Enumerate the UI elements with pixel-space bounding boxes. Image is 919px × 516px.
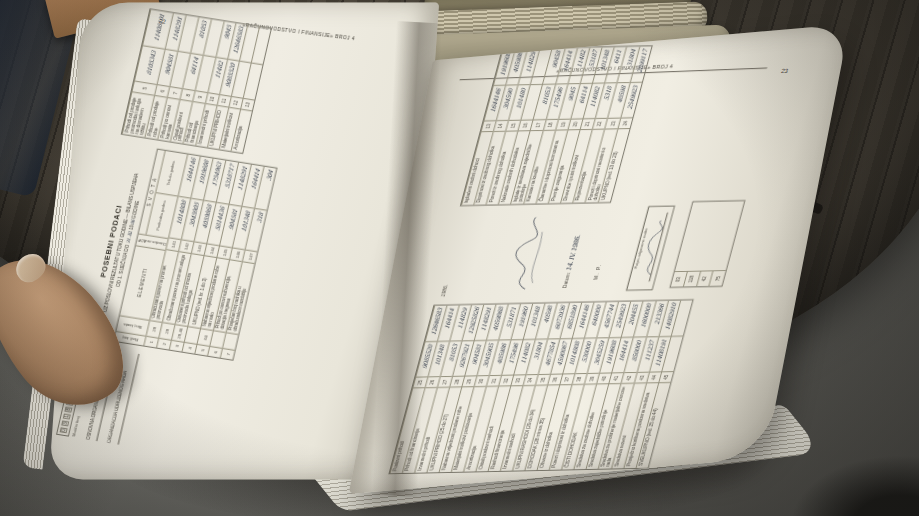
form-code-blank-area	[675, 201, 744, 271]
handwritten-cur-amount: 6411	[613, 49, 623, 63]
form-code-cell: 75	[710, 271, 726, 286]
handwritten-cur-amount: 9045	[223, 24, 233, 40]
code-grid-cell: 8	[64, 407, 72, 413]
handwritten-prev-amount: 40598	[615, 86, 626, 104]
row-number: 45	[659, 371, 673, 382]
handwritten-prev-amount: 904581	[227, 208, 238, 230]
form-code-cells: 031184275	[671, 270, 726, 287]
handwritten-prev-amount: 318	[254, 212, 263, 224]
period-handwritten-date: 31. III.	[125, 231, 133, 244]
right-form-bottom-table-zone: Poslovni prihodi 25 9085520 12646583 Pri…	[388, 298, 739, 474]
handwritten-cur-amount: 90458	[550, 51, 561, 69]
right-form-signature-zone: 1986. Datum: 14. IV. 1986. M. P. Potpis …	[436, 208, 764, 297]
form-year-note: 1986.	[440, 214, 468, 297]
handwritten-prev-amount: 101348	[239, 210, 250, 232]
handwritten-prev-amount: 5318	[603, 86, 613, 100]
continuation-table: Prihodi od prodaje proizvoda i usluga na…	[121, 8, 272, 154]
cell-aop: 147	[243, 249, 257, 263]
handwritten-cur-amount: 11408191	[152, 13, 165, 42]
code-grid-cell: 0	[60, 427, 68, 433]
handwritten-prev-amount: 8105343	[144, 50, 156, 76]
code-grid-cell: 3	[61, 420, 69, 426]
signature-scribble	[499, 214, 555, 294]
cell-redni-broj: 4	[183, 342, 197, 354]
row-number: 13	[241, 98, 254, 111]
photo-open-accounting-book: 22 «RAČUNOVODSTVO I FINANSIJE» BROJ 4 03…	[0, 0, 919, 516]
handwritten-cur-amount: 304	[264, 169, 273, 181]
handwritten-cur-amount: 31804	[624, 49, 635, 67]
handwritten-prev-amount: 904581	[163, 53, 174, 75]
handwritten-prev-amount: 9045	[566, 87, 576, 101]
cell-redni-broj: 2	[157, 338, 171, 350]
row-number: 24	[619, 117, 633, 128]
left-form-main-column: POSEBNI PODACI UZ POSLOVNI REZULTAT U TO…	[75, 142, 405, 381]
handwritten-cur-amount: 81053	[197, 20, 207, 39]
signature-box: Potpis odgovorne osobe	[626, 205, 675, 290]
date-label: Datum:	[561, 272, 571, 288]
handwritten-prev-amount: 64114	[189, 57, 199, 76]
cell-redni-broj: 5	[195, 344, 209, 356]
cell-redni-broj: 6	[208, 346, 222, 358]
cell-redni-broj: 1	[144, 336, 158, 348]
form-code-box: 031184275	[669, 200, 745, 288]
handwritten-date: 14. IV. 1986.	[564, 235, 582, 271]
cell-redni-broj: 3	[170, 340, 184, 352]
results-table: Poslovni prihodi 25 9085520 12646583 Pri…	[388, 299, 693, 474]
stamp-placeholder-label: M. P.	[592, 264, 602, 280]
date-line: Datum: 14. IV. 1986.	[560, 235, 582, 288]
code-grid-cell: 1	[63, 413, 71, 419]
handwritten-prev-amount: 81053	[540, 87, 551, 105]
right-form-upper-table-zone: Isplaćeni osobni dohoci 13 1644146 19196…	[460, 42, 808, 206]
handwritten-cur-amount: 164414	[249, 167, 260, 189]
cell-konto	[223, 332, 238, 350]
right-page-form: Poslovni prihodi 25 9085520 12646583 Pri…	[388, 42, 808, 474]
period-handwritten-year: 86	[130, 219, 136, 225]
handwritten-prev-amount: 11482	[214, 61, 224, 80]
cell-redni-broj: 7	[221, 348, 235, 360]
